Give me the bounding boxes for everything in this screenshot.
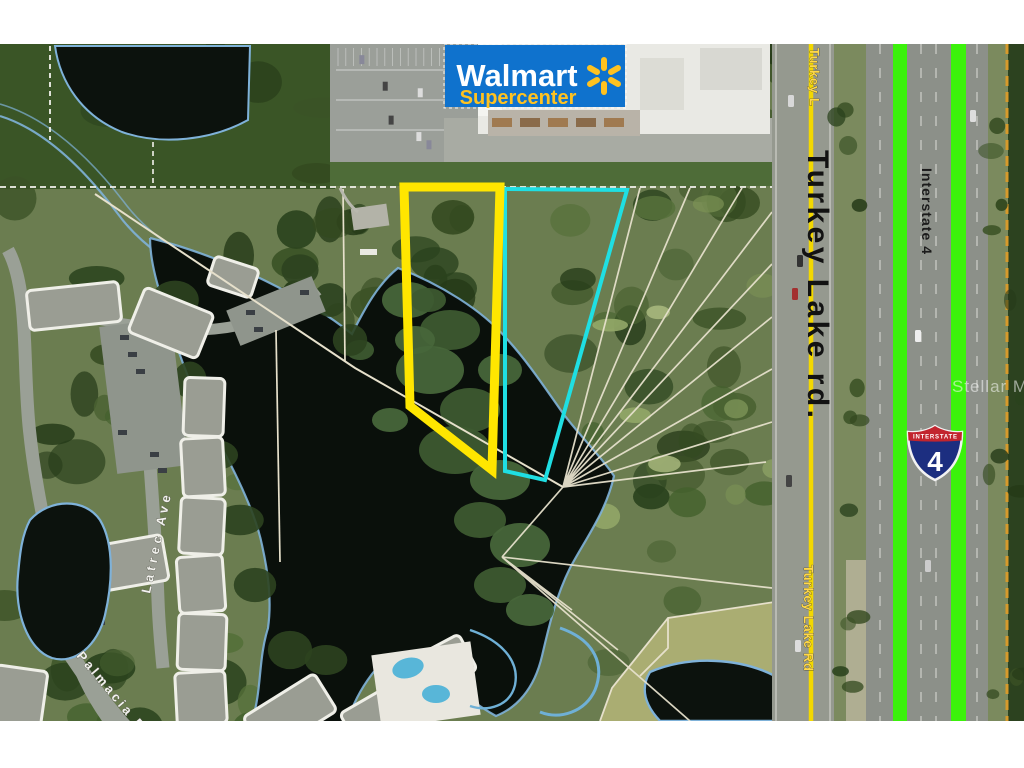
tree-clump [991,449,1009,464]
parked-car [158,468,167,473]
tree-clump [832,666,849,676]
stellar-mls-watermark: Stellar MLS [952,377,1024,396]
apartment-building [175,671,228,726]
parked-car [418,88,423,97]
parked-car [120,335,129,340]
shore-tree [234,568,276,602]
tree-clump [432,200,475,235]
truck-trailer [576,118,596,127]
marsh-clump [372,408,408,432]
parked-car [416,132,421,141]
tree-clump [592,319,628,332]
walmart-supercenter-sign: Walmart Supercenter [444,44,626,109]
map-imagery: Turkey Lake rd. Interstate 4 Turkey L Tu… [0,34,1024,768]
parked-car [389,116,394,125]
apartment-building [179,497,226,555]
vehicle [788,95,794,107]
tree-clump [827,107,845,126]
rooftop-section [640,58,684,110]
tree-clump [840,504,858,517]
tree-clump [289,740,323,768]
parked-car [426,140,431,149]
marsh-clump [395,326,435,354]
marsh-clump [478,354,522,386]
parked-car [254,327,263,332]
vehicle [915,330,921,342]
interstate-4-label: Interstate 4 [919,168,935,254]
apartment-building [177,613,227,671]
parked-car [300,290,309,295]
tree-clump [707,346,741,388]
vehicle [925,560,931,572]
hedge-strip [330,162,774,186]
tree-clump [646,306,670,320]
vehicle [795,640,801,652]
tree-clump [647,540,676,562]
turkey-lake-bottom-label: Turkey Lake Rd [801,565,816,671]
tree-clump [544,334,598,373]
vehicle [970,110,976,122]
tree-clump [839,136,857,155]
tree-clump [693,308,746,330]
tree-clump [724,399,748,418]
tree-clump [840,617,856,630]
shield-interstate-text: INTERSTATE [913,435,957,441]
tree-clump [842,681,864,693]
marsh-clump [490,523,550,567]
parked-car [136,369,145,374]
truck-trailer [492,118,512,127]
truck-trailer [548,118,568,127]
tree-clump [664,586,702,615]
parked-car [383,82,388,91]
tree-clump [668,487,706,517]
tree-clump [710,449,749,475]
tree-clump [1004,289,1016,310]
tree-clump [987,689,1000,699]
tree-clump [614,287,649,325]
tree-clump [850,414,870,426]
apartment-building [183,377,225,436]
tree-clump [679,423,705,457]
tree-clump [852,199,868,212]
pool-deck [371,641,480,728]
boat-dock [360,249,377,255]
apartment-building [0,665,48,734]
tree-clump [312,208,355,238]
marsh-clump [506,594,554,626]
tree-clump [658,249,694,281]
tree-clump [983,464,995,485]
rooftop-section [700,48,762,90]
tree-clump [48,439,105,484]
apartment-building [26,281,122,330]
shield-number: 4 [927,446,943,477]
supercenter-wordmark: Supercenter [460,87,577,109]
marsh-clump [410,288,446,312]
apartment-building [176,554,226,613]
tree-clump [726,484,746,504]
tree-clump [978,143,1004,159]
tree-clump [633,196,675,220]
tree-clump [294,743,316,763]
marsh-clump [470,460,530,500]
tree-clump [277,210,316,249]
map-canvas: Turkey Lake rd. Interstate 4 Turkey L Tu… [0,0,1024,768]
swimming-pool [422,685,450,703]
truck-trailer [604,118,624,127]
tree-clump [983,225,1001,235]
apartment-building [181,437,226,497]
parked-car [118,430,127,435]
turkey-lake-top-label: Turkey L [807,48,822,106]
dock-trailers [492,118,624,127]
truck-trailer [520,118,540,127]
aerial-map-image: Turkey Lake rd. Interstate 4 Turkey L Tu… [0,0,1024,768]
vehicle [786,475,792,487]
shore-tree [305,645,348,675]
tree-clump [550,204,590,237]
i4-lanes-center [907,44,951,721]
parked-car [128,352,137,357]
vehicle [792,288,798,300]
tree-clump [996,199,1008,211]
parked-car [359,55,364,64]
tree-clump [693,195,724,212]
tree-clump [648,456,681,473]
shore-tree [333,324,367,356]
west-pond [17,504,110,660]
tree-clump [560,268,596,291]
tree-clump [850,379,865,398]
tree-clump [989,118,1005,134]
highway-highlight-stripe [893,44,907,721]
parked-car [150,452,159,457]
parked-car [246,310,255,315]
